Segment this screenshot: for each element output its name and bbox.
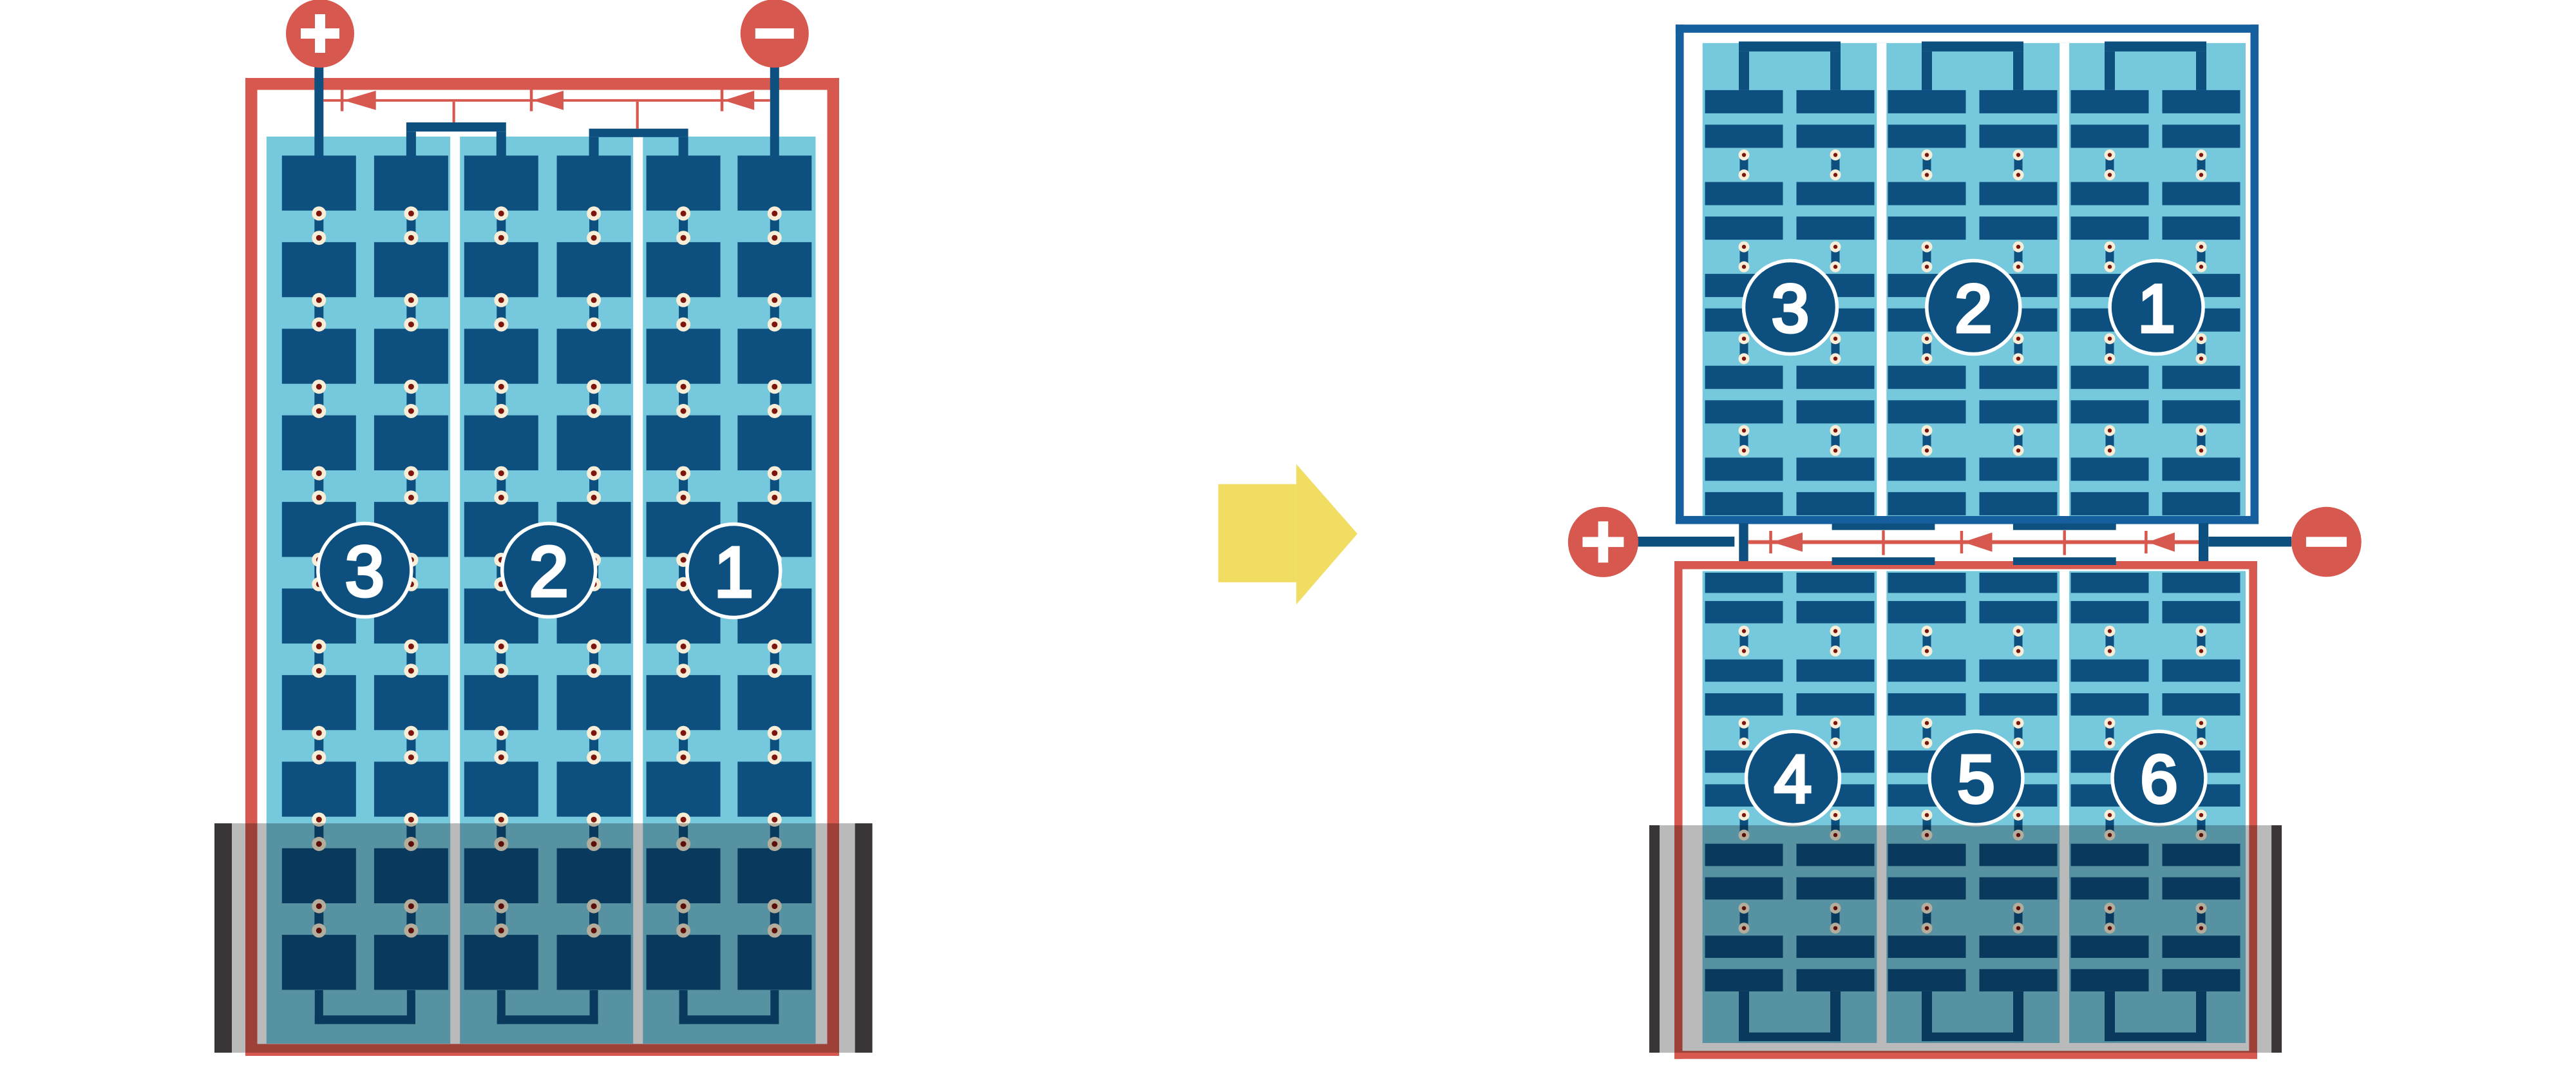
svg-text:1: 1	[714, 533, 753, 612]
svg-text:3: 3	[1772, 271, 1809, 347]
svg-text:2: 2	[1955, 271, 1992, 347]
svg-text:3: 3	[345, 532, 384, 611]
svg-text:6: 6	[2140, 742, 2177, 818]
svg-text:4: 4	[1774, 742, 1812, 818]
svg-text:5: 5	[1957, 742, 1994, 818]
svg-text:2: 2	[529, 532, 569, 611]
svg-text:1: 1	[2137, 271, 2175, 347]
